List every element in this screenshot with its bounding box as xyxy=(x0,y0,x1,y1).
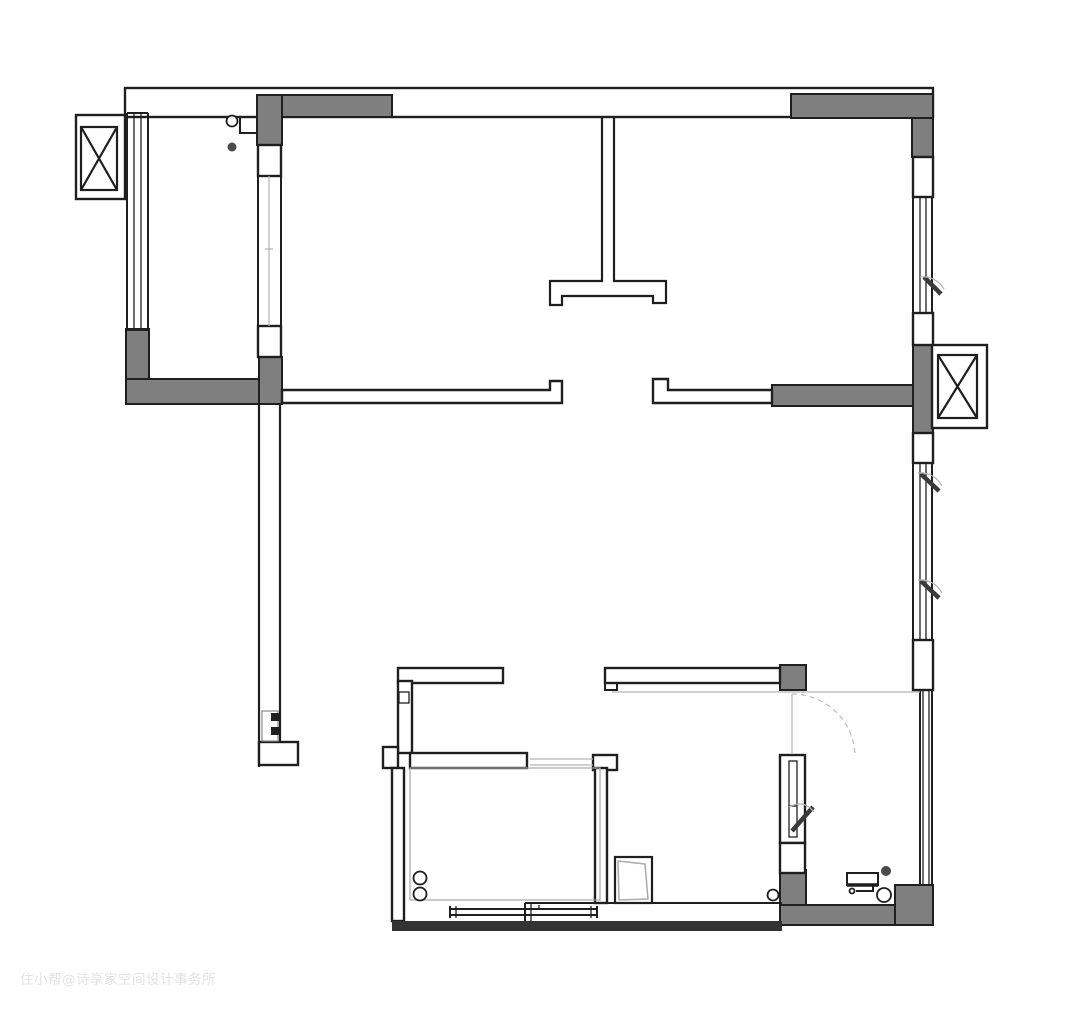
divider-window-sill-bottom xyxy=(258,326,281,357)
shaft-left xyxy=(76,115,125,199)
bathroom-window-inner xyxy=(923,690,929,885)
living-window-outer xyxy=(913,463,932,640)
pipe-icon xyxy=(228,143,237,152)
appliance-door-leaf xyxy=(618,861,648,900)
living-north-wall-left xyxy=(282,381,562,403)
washbasin-icon xyxy=(847,873,878,885)
living-west-wall xyxy=(259,404,298,767)
center-divider-wall xyxy=(550,117,666,305)
west-wall-fitting-bar-bottom xyxy=(271,727,280,735)
bathroom-pipe-icon xyxy=(881,866,891,876)
wall-fill-bath-corner xyxy=(895,885,933,925)
balcony-north-step-wall xyxy=(148,117,258,133)
south-wall xyxy=(392,857,782,931)
bathroom-partition-sill xyxy=(780,843,805,873)
hallway-drain-icon xyxy=(768,890,779,901)
wall-fill-top-left-pier xyxy=(257,95,282,145)
living-north-wall-right xyxy=(653,379,772,403)
wall-fill-mid-right-vertical xyxy=(913,345,933,433)
south-wall-dark-band xyxy=(392,921,782,931)
stove-burner-icon-1 xyxy=(414,872,427,885)
wall-fill-u-right xyxy=(259,357,282,404)
kitchen-sliding-door-icon xyxy=(530,759,593,765)
sill-box-4 xyxy=(913,640,933,690)
wall-fill-top-right-band xyxy=(791,94,933,118)
t-shaped-partition-wall xyxy=(550,117,666,305)
floor-plan-page: 住小帮@诗享家空间设计事务所 xyxy=(0,0,1080,1013)
divider-window xyxy=(258,145,281,357)
bathroom-north-wall xyxy=(605,668,780,683)
shaft-right xyxy=(932,345,987,428)
west-window-outer-lines xyxy=(127,113,148,330)
floor-drain-icon xyxy=(227,116,238,127)
living-casement-icon-2 xyxy=(921,581,939,598)
washbasin-trap-outlet xyxy=(850,889,855,894)
watermark: 住小帮@诗享家空间设计事务所 xyxy=(20,968,280,988)
divider-window-glass-line xyxy=(265,176,273,326)
balcony-area xyxy=(127,113,258,330)
kitchen xyxy=(383,668,617,921)
east-facade xyxy=(913,157,944,885)
bathroom-door-swing-arc xyxy=(792,694,855,757)
kitchen-south-band xyxy=(410,753,527,768)
west-window-caps xyxy=(127,113,148,330)
concrete-wall-fills xyxy=(126,94,933,925)
stove-burner-icon-2 xyxy=(414,888,427,901)
sill-box-3 xyxy=(913,433,933,463)
divider-window-sill-top xyxy=(258,145,281,176)
kitchen-west-wall-lower xyxy=(392,768,404,921)
south-window-lines xyxy=(450,909,597,915)
kitchen-north-wall xyxy=(398,668,503,683)
west-window-inner-lines xyxy=(134,113,141,330)
bedroom2-window-outer xyxy=(913,197,932,313)
west-wall-end-cap xyxy=(259,742,298,765)
wall-fill-bath-north-pier xyxy=(780,665,806,690)
living-north-wall xyxy=(282,379,772,403)
living-window-inner xyxy=(920,463,926,640)
bedroom2-window-inner xyxy=(920,197,926,313)
floor-plan-drawing xyxy=(0,0,1080,1013)
kitchen-west-jamb xyxy=(383,747,398,768)
wall-fill-top-right-pier xyxy=(912,118,933,157)
bathroom-drain-icon xyxy=(877,888,891,902)
living-casement-icon-1 xyxy=(921,474,939,491)
bathroom-window-outer xyxy=(920,690,932,885)
kitchen-east-wall xyxy=(595,768,607,903)
south-window-caps xyxy=(450,906,597,918)
sill-box-2 xyxy=(913,313,933,345)
sill-box-1 xyxy=(913,157,933,197)
wall-fill-mid-right-horizontal xyxy=(772,385,913,406)
south-window-ticks xyxy=(456,905,591,918)
west-wall-fitting-bar-top xyxy=(271,713,280,721)
kitchen-counter-outline xyxy=(410,768,600,900)
